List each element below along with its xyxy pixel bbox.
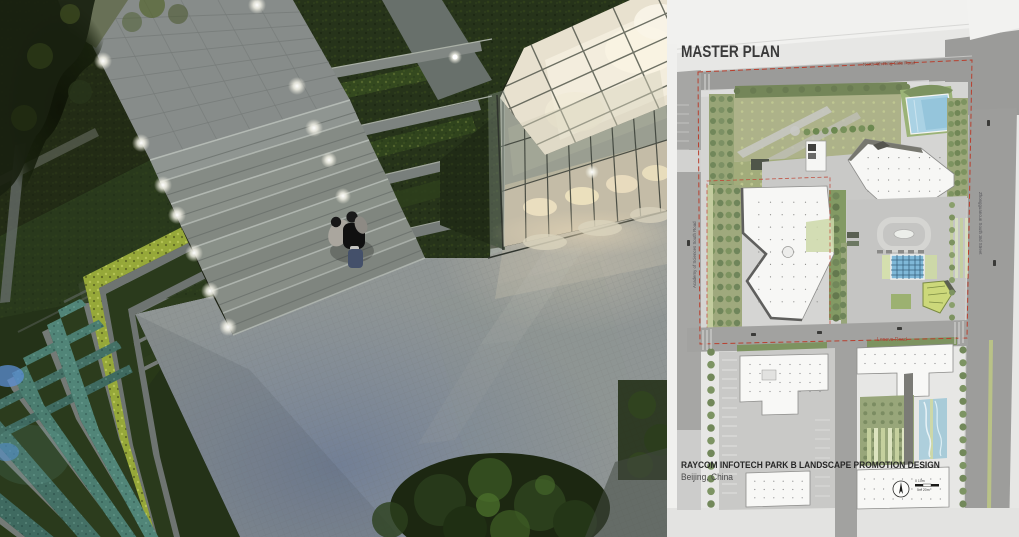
svg-text:Academy of Sciences South Road: Academy of Sciences South Road [692,221,697,288]
svg-text:Lenovo Road: Lenovo Road [877,337,907,343]
svg-text:Zhongguancun South 3rd Street: Zhongguancun South 3rd Street [978,192,983,255]
svg-text:0 10m: 0 10m [915,479,925,483]
svg-text:5m 20m: 5m 20m [917,488,930,492]
